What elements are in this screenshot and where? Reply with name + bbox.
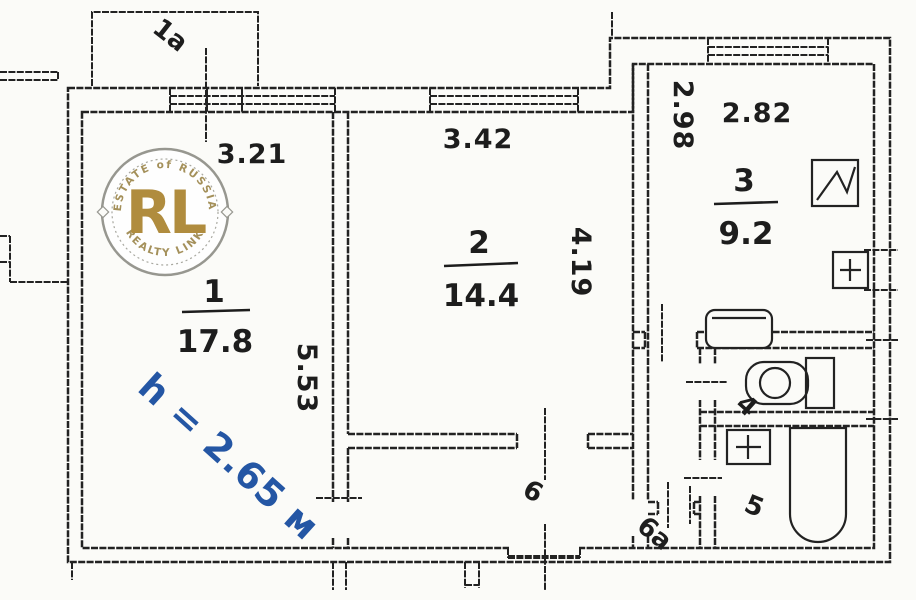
washbasin-icon [727, 430, 770, 464]
dim-room1-width: 3.21 [217, 139, 288, 170]
room5-label: 5 [740, 489, 768, 524]
room2-number: 2 [468, 225, 490, 261]
balcony-label: 1a [147, 13, 194, 59]
floor-plan: ESTATE of RUSSIA REALTY LINK RL 3.21 3.4… [0, 0, 916, 600]
dim-room2-depth: 4.19 [565, 227, 596, 298]
window-room1 [170, 88, 335, 112]
room1-number: 1 [203, 274, 225, 310]
room2-area: 14.4 [443, 278, 520, 314]
room2-label: 2 14.4 [443, 225, 520, 314]
room1-fraction-line [182, 310, 250, 312]
room1-area: 17.8 [177, 324, 254, 360]
floor-plan-page: ESTATE of RUSSIA REALTY LINK RL 3.21 3.4… [0, 0, 916, 600]
dim-room3-width: 2.82 [722, 98, 793, 129]
watermark-monogram: RL [126, 178, 206, 248]
dim-room3-depth: 2.98 [667, 80, 698, 151]
room3-fraction-line [714, 202, 778, 204]
vent-box [706, 310, 772, 348]
room1-label: 1 17.8 [177, 274, 254, 360]
neighbour-wall-stub [0, 72, 58, 80]
watermark-logo: ESTATE of RUSSIA REALTY LINK RL [97, 149, 232, 275]
window-kitchen [708, 38, 828, 64]
room3-label: 3 9.2 [714, 163, 778, 252]
vent-shaft-icon [833, 250, 898, 290]
hall-door-leafs [668, 482, 690, 528]
dim-room1-depth: 5.53 [291, 343, 322, 414]
neighbour-balcony-stub [0, 236, 68, 282]
entrance-door-jamb [465, 562, 479, 588]
room3-area: 9.2 [719, 216, 774, 252]
room6-label: 6 [518, 474, 548, 509]
room3-number: 3 [733, 163, 755, 199]
room4-label: 4 [730, 389, 764, 423]
room6a-label: 6a [631, 511, 678, 557]
dim-room2-width: 3.42 [443, 124, 514, 155]
window-room2 [430, 88, 578, 112]
stove-icon [812, 160, 858, 206]
bathtub-icon [790, 428, 846, 542]
interior-walls [316, 64, 898, 548]
dimension-labels: 3.21 3.42 2.82 2.98 5.53 4.19 [217, 80, 793, 414]
room2-fraction-line [444, 263, 518, 266]
windows [170, 12, 828, 112]
